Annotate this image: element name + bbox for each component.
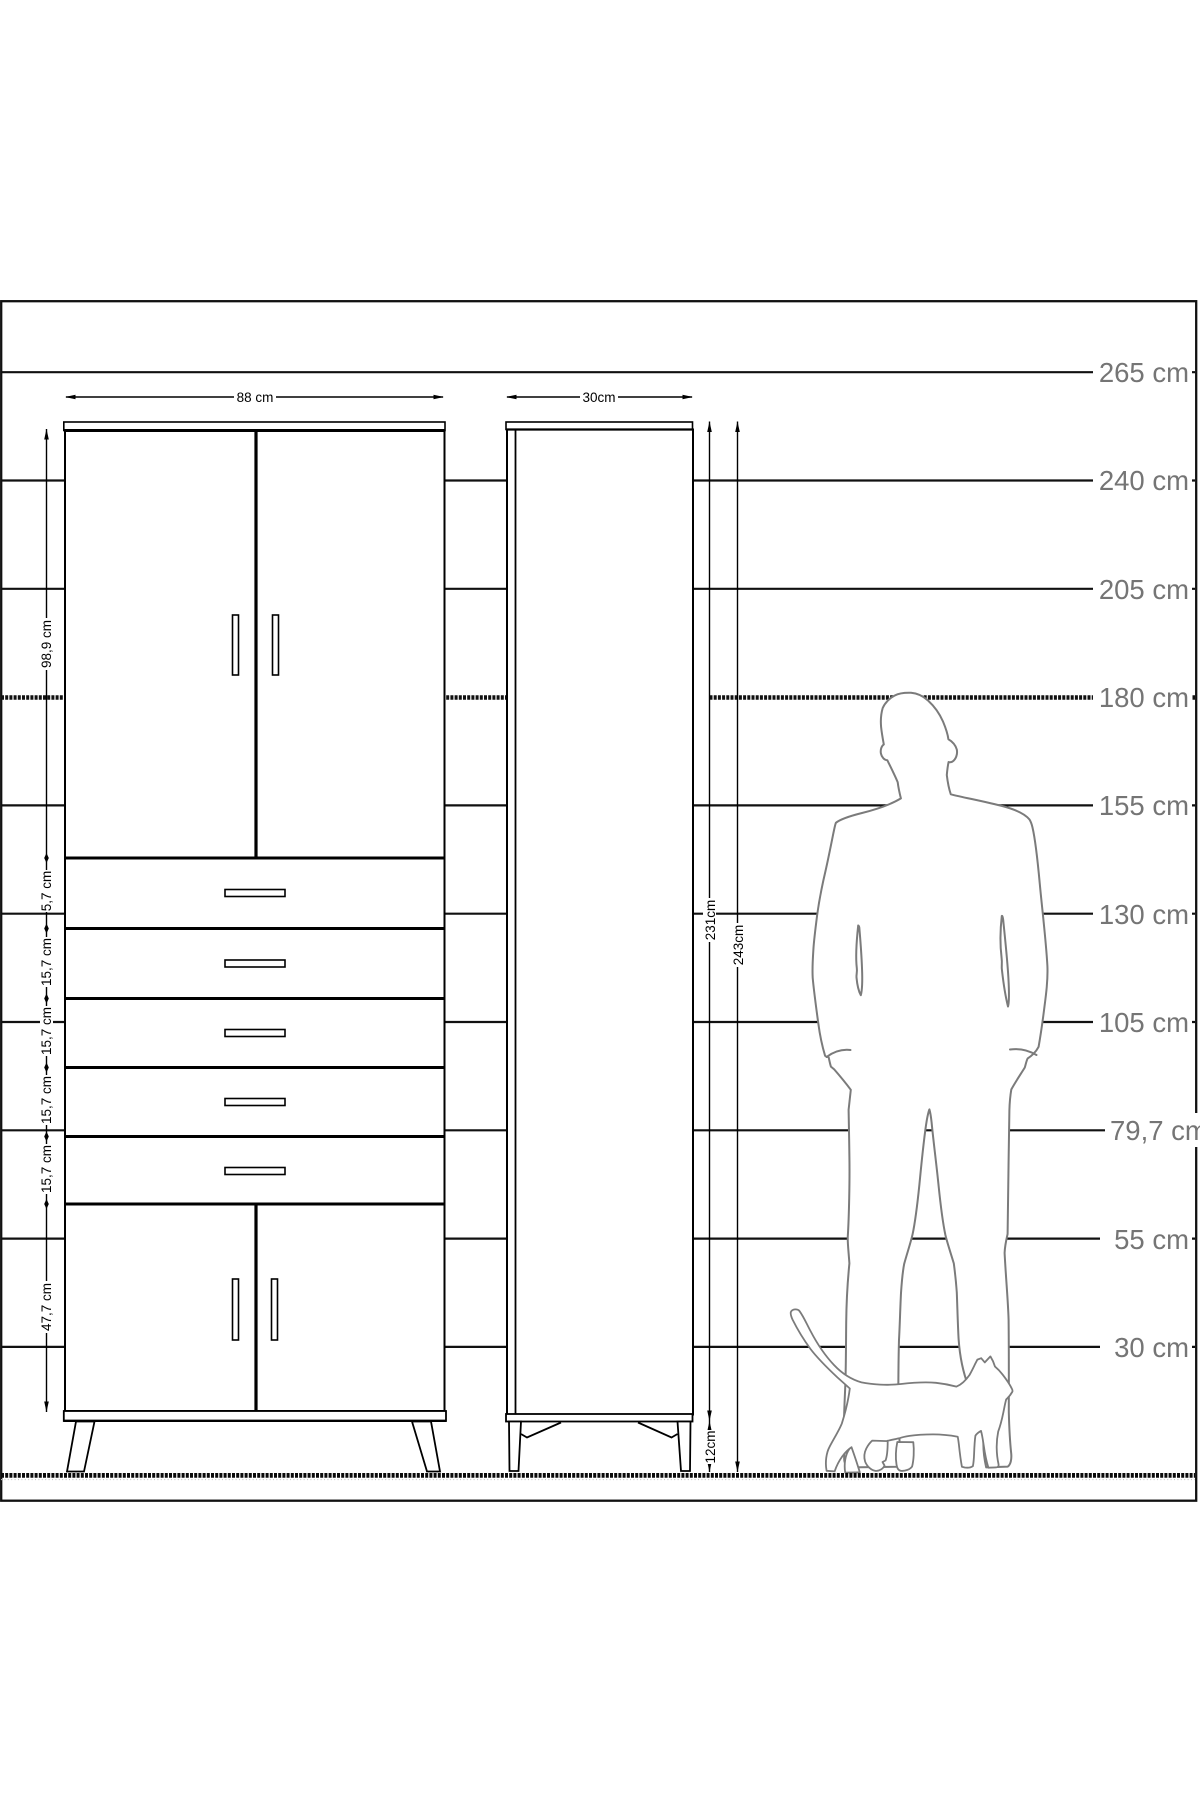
svg-text:15,7 cm: 15,7 cm bbox=[39, 1145, 54, 1193]
svg-text:243cm: 243cm bbox=[731, 925, 746, 966]
svg-text:5,7 cm: 5,7 cm bbox=[39, 871, 54, 912]
svg-text:88 cm: 88 cm bbox=[237, 390, 274, 405]
svg-text:265 cm: 265 cm bbox=[1099, 357, 1189, 388]
svg-text:205 cm: 205 cm bbox=[1099, 574, 1189, 605]
svg-text:231cm: 231cm bbox=[703, 900, 718, 941]
svg-text:15,7 cm: 15,7 cm bbox=[39, 1076, 54, 1124]
svg-text:47,7 cm: 47,7 cm bbox=[39, 1283, 54, 1331]
svg-text:130 cm: 130 cm bbox=[1099, 899, 1189, 930]
svg-text:79,7 cm: 79,7 cm bbox=[1110, 1115, 1200, 1146]
svg-text:180 cm: 180 cm bbox=[1099, 682, 1189, 713]
svg-text:12cm: 12cm bbox=[703, 1430, 718, 1463]
svg-text:105 cm: 105 cm bbox=[1099, 1007, 1189, 1038]
svg-text:15,7 cm: 15,7 cm bbox=[39, 938, 54, 986]
svg-text:15,7 cm: 15,7 cm bbox=[39, 1007, 54, 1055]
svg-text:98,9 cm: 98,9 cm bbox=[39, 620, 54, 668]
svg-text:240 cm: 240 cm bbox=[1099, 465, 1189, 496]
svg-text:55 cm: 55 cm bbox=[1114, 1224, 1189, 1255]
svg-text:30cm: 30cm bbox=[582, 390, 615, 405]
svg-text:30 cm: 30 cm bbox=[1114, 1332, 1189, 1363]
svg-text:155 cm: 155 cm bbox=[1099, 790, 1189, 821]
